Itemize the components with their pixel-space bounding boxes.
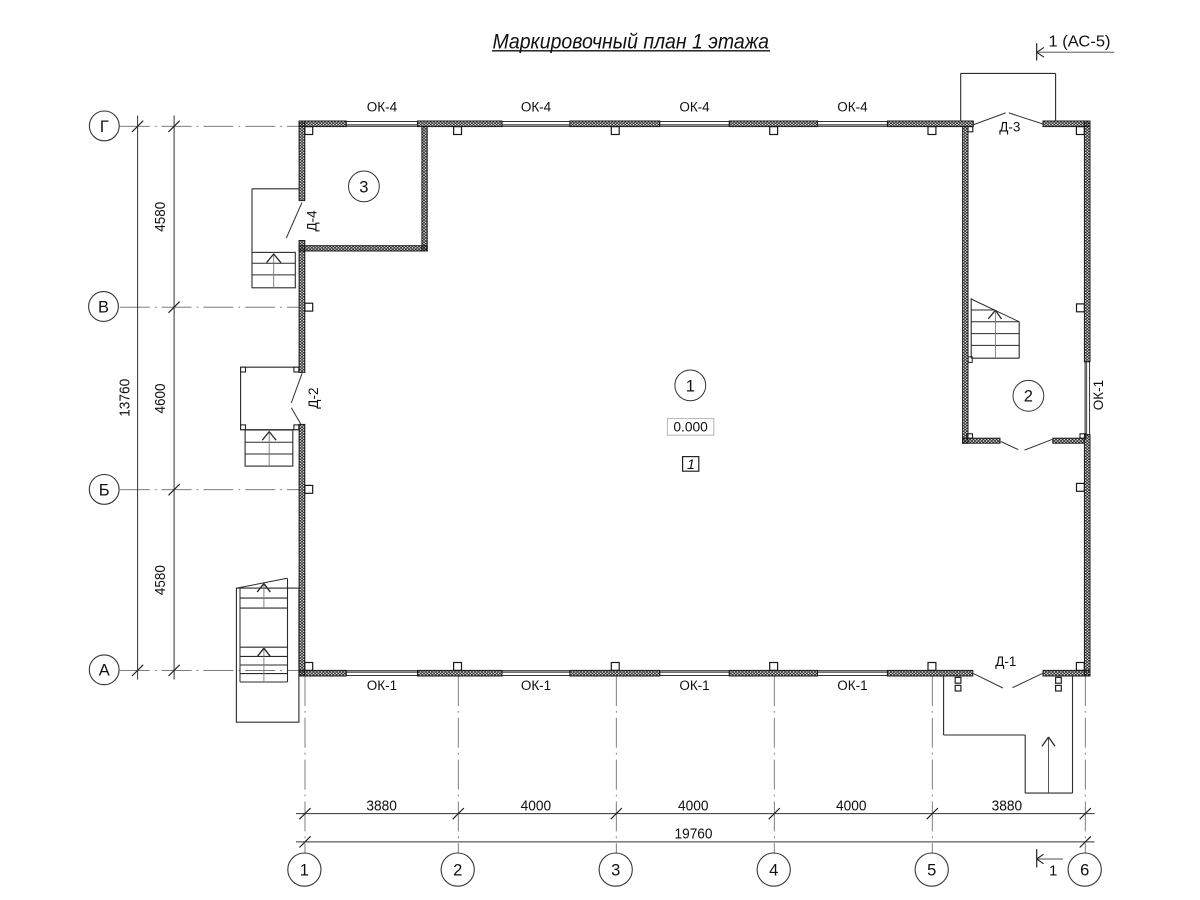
svg-text:1: 1: [300, 862, 309, 880]
svg-text:Маркировочный план 1 этажа: Маркировочный план 1 этажа: [492, 30, 769, 53]
svg-text:ОК-4: ОК-4: [837, 99, 868, 114]
svg-text:А: А: [99, 662, 110, 680]
svg-text:0.000: 0.000: [673, 420, 708, 435]
svg-text:1: 1: [1049, 863, 1057, 880]
svg-text:4000: 4000: [521, 797, 552, 814]
svg-text:Д-1: Д-1: [995, 654, 1016, 669]
svg-text:4600: 4600: [152, 384, 169, 414]
svg-text:5: 5: [927, 862, 936, 880]
svg-text:1: 1: [686, 377, 695, 395]
svg-text:ОК-1: ОК-1: [837, 678, 867, 693]
svg-text:Д-4: Д-4: [305, 210, 320, 232]
svg-text:19760: 19760: [675, 826, 713, 843]
svg-text:4580: 4580: [152, 202, 169, 232]
svg-text:2: 2: [453, 862, 462, 880]
svg-text:ОК-1: ОК-1: [1091, 380, 1106, 410]
svg-text:ОК-1: ОК-1: [521, 678, 551, 693]
svg-text:4000: 4000: [836, 797, 867, 814]
svg-text:1 (АС-5): 1 (АС-5): [1049, 33, 1111, 50]
svg-text:3880: 3880: [992, 797, 1023, 814]
svg-text:Д-3: Д-3: [999, 120, 1020, 135]
svg-text:6: 6: [1080, 862, 1089, 880]
svg-text:Д-2: Д-2: [306, 388, 321, 409]
svg-text:Г: Г: [100, 118, 109, 136]
svg-text:ОК-4: ОК-4: [521, 99, 552, 114]
svg-text:3880: 3880: [366, 797, 397, 814]
svg-text:3: 3: [611, 862, 620, 880]
svg-text:ОК-4: ОК-4: [679, 99, 710, 114]
svg-text:В: В: [98, 298, 109, 316]
svg-text:ОК-1: ОК-1: [679, 678, 709, 693]
svg-text:2: 2: [1024, 388, 1033, 406]
svg-text:4000: 4000: [678, 797, 709, 814]
svg-text:Б: Б: [99, 481, 110, 499]
svg-text:ОК-1: ОК-1: [367, 678, 397, 693]
svg-text:13760: 13760: [116, 379, 133, 417]
svg-text:4: 4: [769, 862, 778, 880]
svg-text:1: 1: [687, 457, 695, 473]
svg-text:4580: 4580: [152, 565, 169, 595]
svg-text:3: 3: [359, 178, 368, 196]
svg-text:ОК-4: ОК-4: [367, 99, 398, 114]
